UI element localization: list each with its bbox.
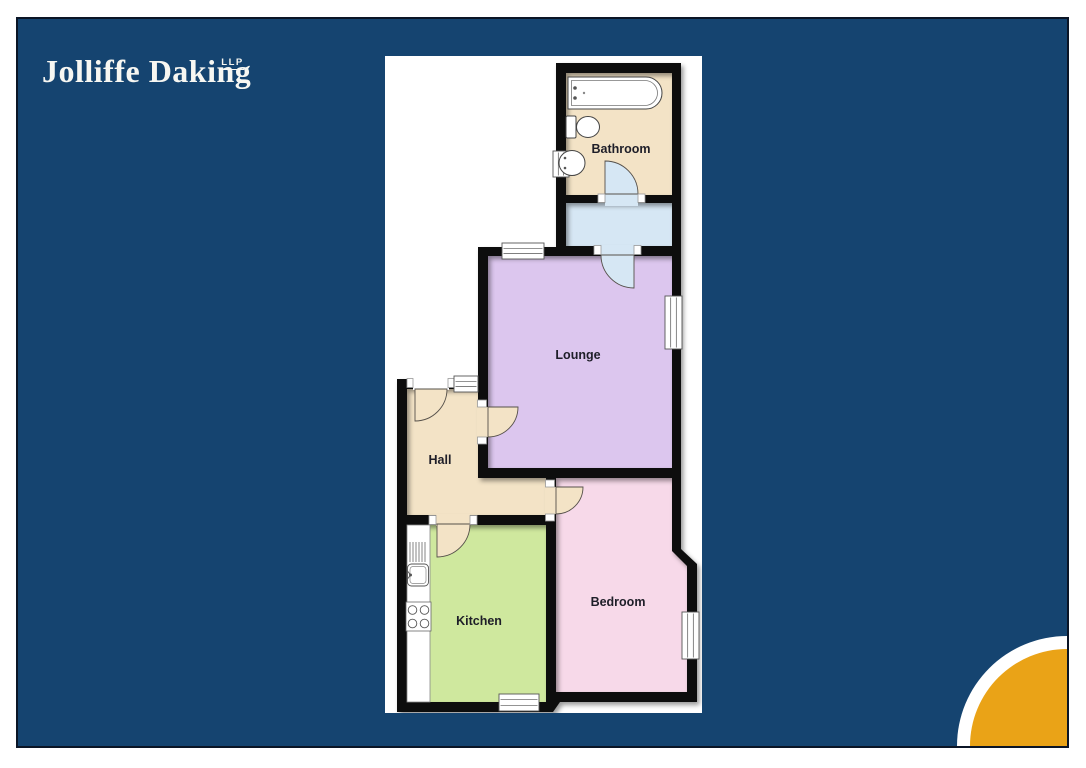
corner-orange-quadrant xyxy=(970,649,1067,746)
bath-icon xyxy=(568,77,662,109)
floorplan-svg: Bathroom Lounge Hall Kitchen Bedroom xyxy=(385,56,702,713)
brand-name: Jolliffe Daking xyxy=(42,53,251,89)
hob-icon xyxy=(406,602,431,631)
kitchen-sink-icon xyxy=(408,564,429,586)
brand-designation: LLP xyxy=(221,57,243,70)
label-kitchen: Kitchen xyxy=(456,614,502,628)
toilet-icon xyxy=(566,116,600,138)
label-bedroom: Bedroom xyxy=(591,595,646,609)
label-lounge: Lounge xyxy=(555,348,600,362)
front-door-opening xyxy=(413,377,449,390)
bedroom-window xyxy=(682,612,699,659)
label-hall: Hall xyxy=(429,453,452,467)
label-bathroom: Bathroom xyxy=(591,142,650,156)
lounge-right-window xyxy=(665,296,682,349)
lounge-top-window xyxy=(502,243,544,259)
page: Jolliffe DakingLLP xyxy=(0,0,1086,768)
hall-window xyxy=(454,376,478,392)
kitchen-window xyxy=(499,694,539,711)
kitchen-fixtures xyxy=(406,525,431,702)
basin-icon xyxy=(559,151,585,176)
room-lounge-floor xyxy=(483,251,677,473)
lounge-door-opening xyxy=(477,407,489,437)
room-landing-floor xyxy=(560,199,677,251)
floorplan-panel: Bathroom Lounge Hall Kitchen Bedroom xyxy=(385,56,702,713)
bedroom-door-opening xyxy=(545,487,557,514)
brand-logo: Jolliffe DakingLLP xyxy=(42,53,274,90)
